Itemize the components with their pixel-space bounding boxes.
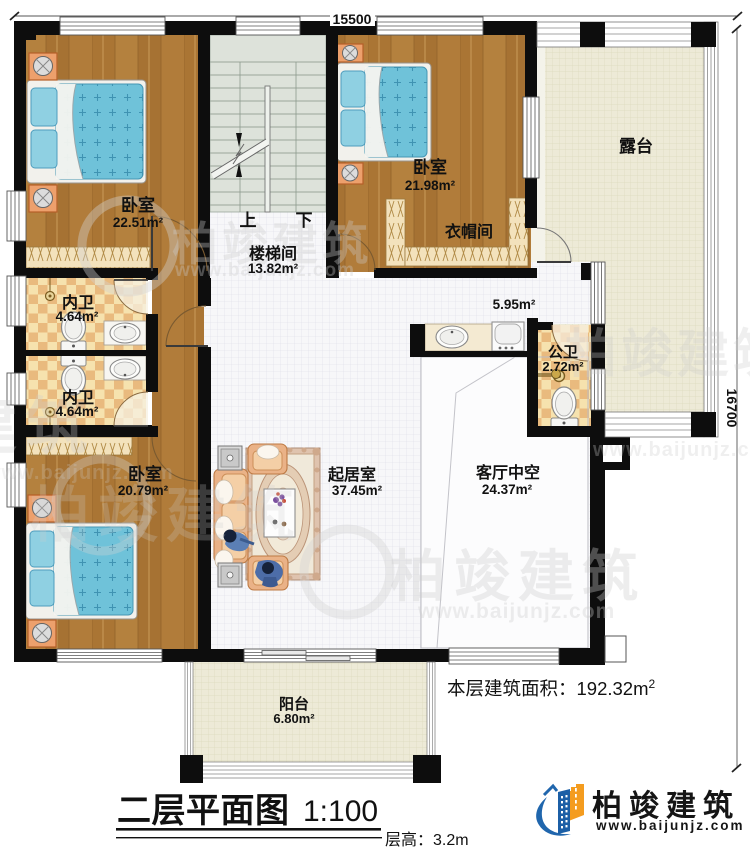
svg-text:6.80m²: 6.80m² bbox=[273, 711, 315, 726]
svg-text:16700: 16700 bbox=[724, 389, 740, 428]
svg-text:柏竣建筑: 柏竣建筑 bbox=[390, 545, 646, 608]
svg-text:卧室: 卧室 bbox=[121, 195, 155, 215]
svg-text:22.51m²: 22.51m² bbox=[113, 215, 164, 230]
svg-text:4.64m²: 4.64m² bbox=[56, 309, 99, 324]
svg-text:20.79m²: 20.79m² bbox=[118, 483, 169, 498]
svg-text:本层建筑面积：192.32m2: 本层建筑面积：192.32m2 bbox=[447, 677, 656, 699]
svg-text:露台: 露台 bbox=[619, 136, 653, 156]
svg-text:15500: 15500 bbox=[333, 11, 372, 27]
svg-text:13.82m²: 13.82m² bbox=[248, 261, 299, 276]
svg-text:层高：3.2m: 层高：3.2m bbox=[385, 831, 469, 849]
svg-text:柏竣建筑: 柏竣建筑 bbox=[565, 326, 750, 384]
svg-text:2.72m²: 2.72m² bbox=[542, 359, 584, 374]
svg-text:5.95m²: 5.95m² bbox=[493, 297, 536, 312]
svg-text:下: 下 bbox=[296, 211, 313, 230]
svg-text:衣帽间: 衣帽间 bbox=[445, 222, 493, 241]
svg-text:21.98m²: 21.98m² bbox=[405, 178, 456, 193]
svg-text:起居室: 起居室 bbox=[327, 465, 376, 484]
svg-text:卧室: 卧室 bbox=[413, 157, 447, 177]
svg-text:上: 上 bbox=[240, 211, 257, 230]
svg-text:1:100: 1:100 bbox=[303, 795, 378, 828]
svg-text:www.baijunjz.com: www.baijunjz.com bbox=[595, 818, 745, 833]
svg-text:24.37m²: 24.37m² bbox=[482, 482, 533, 497]
svg-text:www.baijunjz.com: www.baijunjz.com bbox=[592, 439, 750, 461]
svg-text:卧室: 卧室 bbox=[128, 464, 162, 484]
svg-text:37.45m²: 37.45m² bbox=[332, 483, 383, 498]
svg-text:二层平面图: 二层平面图 bbox=[117, 792, 290, 830]
svg-text:客厅中空: 客厅中空 bbox=[476, 463, 540, 482]
svg-text:4.64m²: 4.64m² bbox=[56, 404, 99, 419]
svg-text:www.baijunjz.com: www.baijunjz.com bbox=[417, 600, 615, 623]
